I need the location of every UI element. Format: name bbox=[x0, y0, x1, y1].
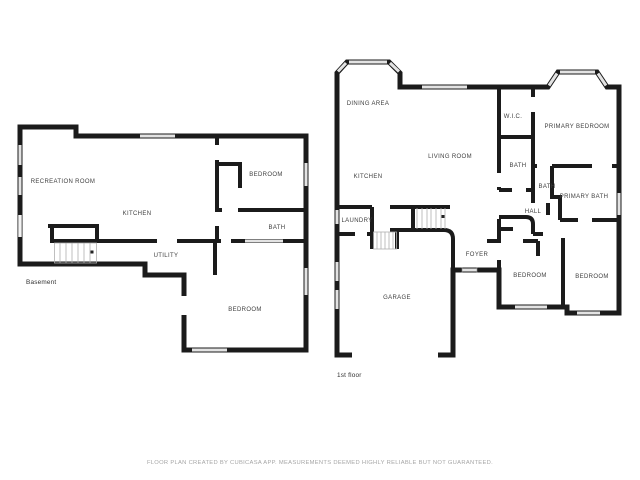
room-label-primary-bath: PRIMARY BATH bbox=[560, 194, 609, 200]
room-label-garage: GARAGE bbox=[383, 295, 411, 301]
basement-walls bbox=[20, 127, 306, 350]
first-floor-label: 1st floor bbox=[337, 372, 362, 379]
room-label-wic: W.I.C. bbox=[504, 114, 522, 120]
room-label-bath-basement: BATH bbox=[269, 225, 286, 231]
disclaimer-text: FLOOR PLAN CREATED BY CUBICASA APP. MEAS… bbox=[147, 460, 493, 466]
stairs-direction-dot bbox=[442, 215, 445, 218]
room-label-foyer: FOYER bbox=[466, 252, 489, 258]
room-label-bedroom-center: BEDROOM bbox=[513, 273, 546, 279]
room-label-dining-area: DINING AREA bbox=[347, 101, 390, 107]
basement-floor-label: Basement bbox=[26, 279, 56, 286]
room-label-kitchen-basement: KITCHEN bbox=[123, 211, 152, 217]
room-label-living-room: LIVING ROOM bbox=[428, 154, 472, 160]
room-label-bath: BATH bbox=[510, 163, 527, 169]
basement-plan: RECREATION ROOM KITCHEN BEDROOM BATH UTI… bbox=[20, 127, 306, 350]
floor-plan-page: RECREATION ROOM KITCHEN BEDROOM BATH UTI… bbox=[0, 0, 640, 480]
room-label-bedroom-right: BEDROOM bbox=[575, 274, 608, 280]
room-label-primary-bedroom: PRIMARY BEDROOM bbox=[544, 124, 609, 130]
room-label-recreation-room: RECREATION ROOM bbox=[31, 179, 95, 185]
room-label-laundry: LAUNDRY bbox=[341, 218, 372, 224]
room-label-hall: HALL bbox=[525, 209, 542, 215]
stairs-direction-dot bbox=[91, 251, 94, 254]
room-label-bedroom-upper: BEDROOM bbox=[249, 172, 282, 178]
floor-plan-image: RECREATION ROOM KITCHEN BEDROOM BATH UTI… bbox=[0, 0, 640, 480]
basement-stairs bbox=[55, 243, 97, 263]
room-label-kitchen: KITCHEN bbox=[354, 174, 383, 180]
room-label-bath-small: BATH bbox=[539, 184, 556, 190]
first-floor-plan: DINING AREA KITCHEN LIVING ROOM LAUNDRY … bbox=[337, 62, 619, 379]
room-label-bedroom-lower: BEDROOM bbox=[228, 307, 261, 313]
room-label-utility: UTILITY bbox=[154, 253, 179, 259]
